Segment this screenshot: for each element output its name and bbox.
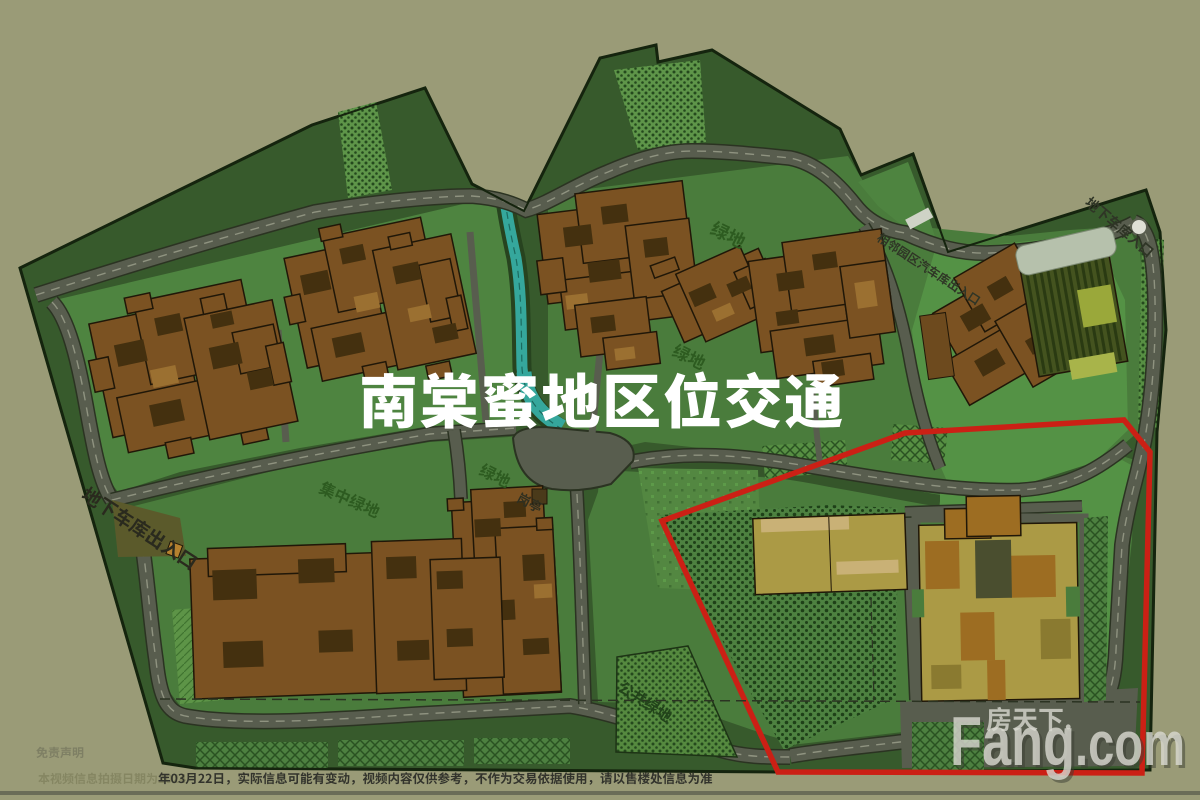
svg-text:.com: .com	[1075, 710, 1185, 779]
svg-text:Fang: Fang	[950, 702, 1075, 780]
